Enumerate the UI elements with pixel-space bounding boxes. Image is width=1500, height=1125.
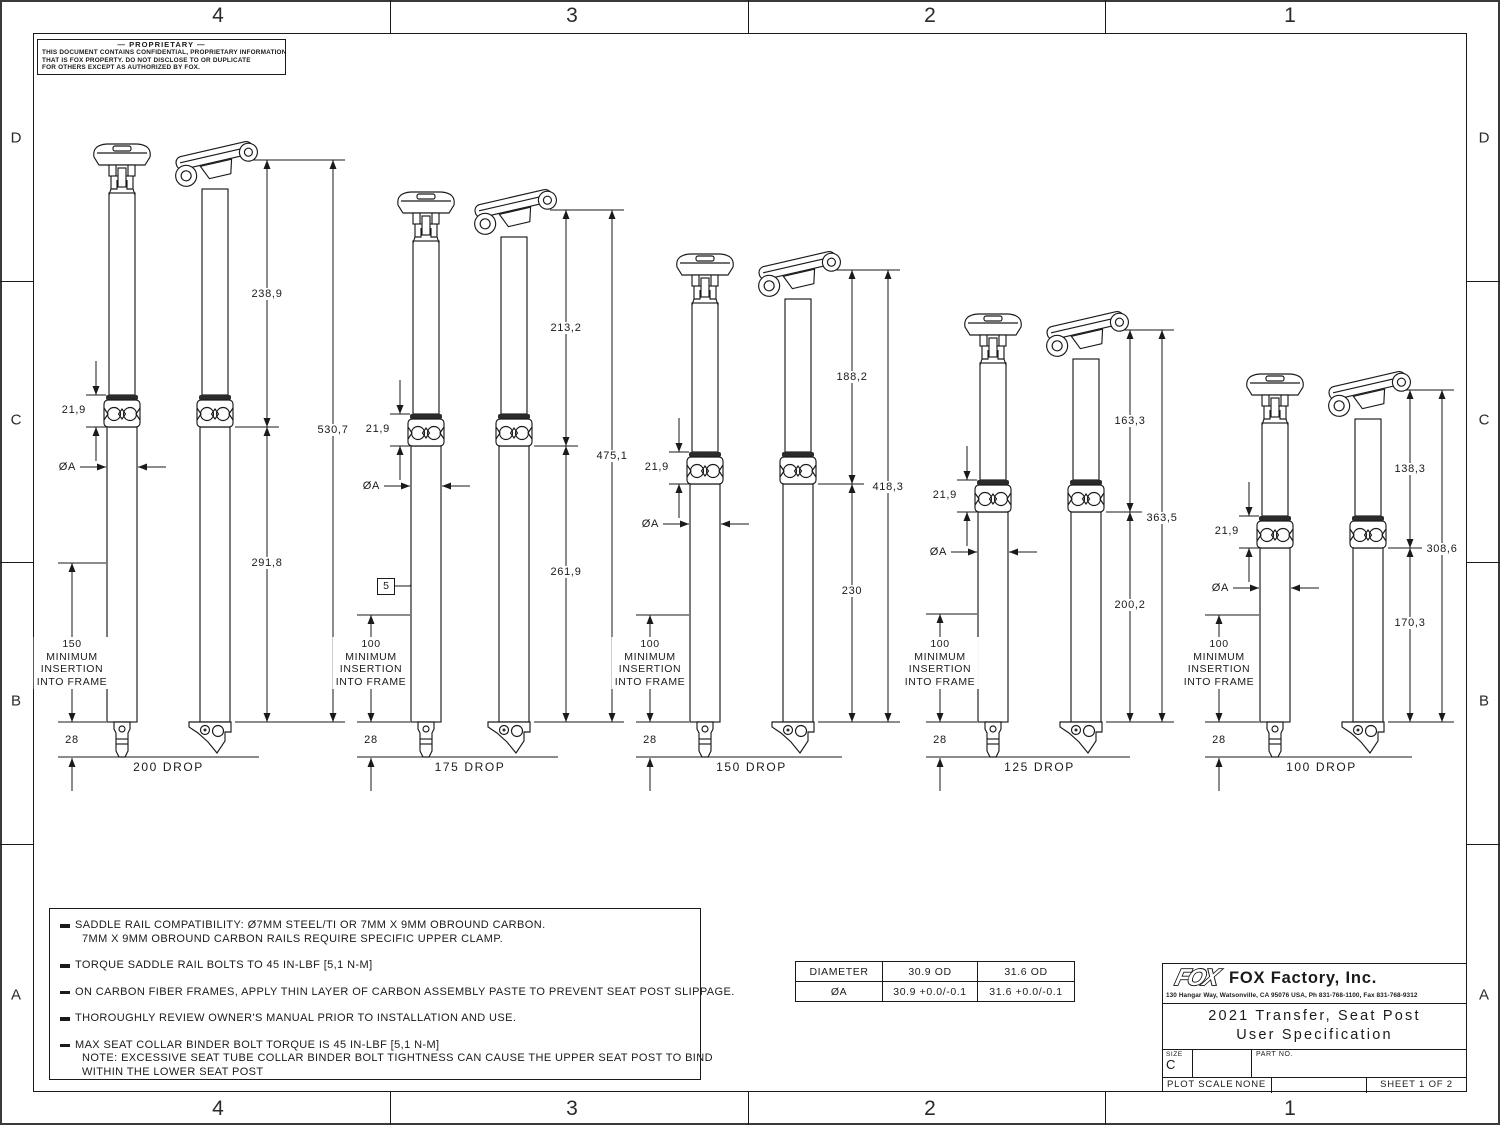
plot-scale-cell: PLOT SCALE NONE [1163,1078,1272,1093]
drawing-title-line1: 2021 Transfer, Seat Post [1163,1007,1466,1026]
note-line: MAX SEAT COLLAR BINDER BOLT TORQUE IS 45… [75,1039,713,1053]
fox-logo: FOX [1169,965,1227,991]
sheet-number: SHEET 1 OF 2 [1367,1078,1466,1093]
drawing-title: 2021 Transfer, Seat Post User Specificat… [1163,1007,1466,1050]
dim-lower-label: 230 [840,585,864,597]
insertion-note: 150MINIMUMINSERTIONINTO FRAME [34,637,111,689]
insertion-note-line: 100 [336,638,407,651]
dim-lower-label: 200,2 [1112,599,1147,611]
note-item: SADDLE RAIL COMPATIBILITY: Ø7MM STEEL/TI… [60,919,700,946]
insertion-note-line: INTO FRAME [1184,676,1255,689]
insertion-note-line: INSERTION [615,663,686,676]
title-block-company-row: FOX FOX Factory, Inc. 130 Hangar Way, Wa… [1163,964,1466,1004]
title-block-size-row: SIZE C PART NO. [1163,1050,1466,1078]
bottom-offset-label: 28 [362,734,380,746]
diameter-label: ØA [57,461,78,473]
dash-bullet-icon [60,964,70,968]
collar-height-label: 21,9 [643,461,671,473]
title-block-scale-row: PLOT SCALE NONE SHEET 1 OF 2 [1163,1078,1466,1093]
note-line: THOROUGHLY REVIEW OWNER'S MANUAL PRIOR T… [75,1012,516,1026]
collar-height-label: 21,9 [60,404,88,416]
dim-lower-label: 261,9 [548,566,583,578]
diameter-label: ØA [1210,582,1231,594]
company-address: 130 Hangar Way, Watsonville, CA 95076 US… [1166,992,1464,999]
fox-logo-text: FOX [1173,965,1224,990]
table-cell: 31.6 +0.0/-0.1 [978,982,1075,1002]
part-no-label: PART NO. [1256,1051,1466,1058]
plot-scale-value: NONE [1235,1079,1266,1093]
seatpost-2-art [636,249,900,791]
insertion-note-line: INSERTION [37,663,108,676]
seatpost-4-art [1205,369,1454,791]
note-item: ON CARBON FIBER FRAMES, APPLY THIN LAYER… [60,986,700,1000]
insertion-note-line: INSERTION [1184,663,1255,676]
insertion-note-line: 100 [615,638,686,651]
note-line: WITHIN THE LOWER SEAT POST [75,1066,713,1080]
seatpost-0-art [58,139,345,791]
note-line: 7MM X 9MM OBROUND CARBON RAILS REQUIRE S… [75,933,546,947]
size-cell: SIZE C [1163,1050,1193,1077]
table-cell: 30.9 +0.0/-0.1 [883,982,978,1002]
size-value: C [1166,1058,1192,1072]
dim-lower-label: 291,8 [249,557,284,569]
title-block: FOX FOX Factory, Inc. 130 Hangar Way, Wa… [1162,963,1467,1092]
dim-total-label: 530,7 [315,424,350,436]
note-line: TORQUE SADDLE RAIL BOLTS TO 45 IN-LBF [5… [75,959,373,973]
dash-bullet-icon [60,991,70,995]
drop-label: 200 DROP [133,760,204,774]
drop-label: 150 DROP [716,760,787,774]
plot-scale-label: PLOT SCALE [1167,1079,1233,1093]
insertion-note: 100MINIMUMINSERTIONINTO FRAME [902,637,979,689]
dim-upper-label: 138,3 [1392,463,1427,475]
drawing-sheet: 4 3 2 1 4 3 2 1 D C B A D C B A — PROPRI… [0,0,1500,1125]
empty-cell [1193,1050,1252,1077]
drop-label: 175 DROP [435,760,506,774]
diameter-label: ØA [928,546,949,558]
dim-lower-label: 170,3 [1392,617,1427,629]
table-header-cell: DIAMETER [796,962,883,982]
insertion-note-line: MINIMUM [336,651,407,664]
dim-upper-label: 213,2 [548,322,583,334]
dash-bullet-icon [60,1017,70,1021]
table-header-cell: 31.6 OD [978,962,1075,982]
diameter-table: DIAMETER 30.9 OD 31.6 OD ØA 30.9 +0.0/-0… [795,961,1075,1002]
insertion-note-line: MINIMUM [615,651,686,664]
table-row: ØA 30.9 +0.0/-0.1 31.6 +0.0/-0.1 [796,982,1075,1002]
dash-bullet-icon [60,924,70,928]
dim-total-label: 418,3 [870,481,905,493]
seatpost-1-art [357,187,624,791]
drawing-title-line2: User Specification [1163,1026,1466,1045]
dim-upper-label: 238,9 [249,288,284,300]
insertion-note-line: INTO FRAME [336,676,407,689]
bottom-offset-label: 28 [63,734,81,746]
insertion-note-line: MINIMUM [37,651,108,664]
note-item: TORQUE SADDLE RAIL BOLTS TO 45 IN-LBF [5… [60,959,700,973]
seatpost-3-art [926,309,1174,791]
bottom-offset-label: 28 [1210,734,1228,746]
insertion-note-line: INTO FRAME [37,676,108,689]
flag-note-5: 5 [377,578,395,595]
note-line: SADDLE RAIL COMPATIBILITY: Ø7MM STEEL/TI… [75,919,546,933]
dash-bullet-icon [60,1044,70,1048]
insertion-note-line: MINIMUM [905,651,976,664]
insertion-note: 100MINIMUMINSERTIONINTO FRAME [612,637,689,689]
insertion-note-line: MINIMUM [1184,651,1255,664]
insertion-note: 100MINIMUMINSERTIONINTO FRAME [333,637,410,689]
empty-cell [1272,1078,1367,1093]
note-item: MAX SEAT COLLAR BINDER BOLT TORQUE IS 45… [60,1039,700,1080]
drop-label: 100 DROP [1286,760,1357,774]
note-line: NOTE: EXCESSIVE SEAT TUBE COLLAR BINDER … [75,1052,713,1066]
note-item: THOROUGHLY REVIEW OWNER'S MANUAL PRIOR T… [60,1012,700,1026]
note-line: ON CARBON FIBER FRAMES, APPLY THIN LAYER… [75,986,735,1000]
dim-total-label: 308,6 [1424,543,1459,555]
insertion-note-line: 100 [1184,638,1255,651]
notes-box: SADDLE RAIL COMPATIBILITY: Ø7MM STEEL/TI… [49,908,701,1080]
part-no-cell: PART NO. [1252,1050,1466,1077]
dim-total-label: 363,5 [1144,512,1179,524]
company-name: FOX Factory, Inc. [1229,969,1377,988]
diameter-label: ØA [361,480,382,492]
insertion-note-line: INTO FRAME [615,676,686,689]
bottom-offset-label: 28 [641,734,659,746]
insertion-note-line: 150 [37,638,108,651]
table-header-cell: 30.9 OD [883,962,978,982]
drop-label: 125 DROP [1004,760,1075,774]
insertion-note-line: 100 [905,638,976,651]
table-cell: ØA [796,982,883,1002]
insertion-note-line: INSERTION [905,663,976,676]
dim-total-label: 475,1 [594,450,629,462]
collar-height-label: 21,9 [1213,525,1241,537]
insertion-note-line: INSERTION [336,663,407,676]
dim-upper-label: 188,2 [834,371,869,383]
insertion-note: 100MINIMUMINSERTIONINTO FRAME [1181,637,1258,689]
collar-height-label: 21,9 [931,489,959,501]
collar-height-label: 21,9 [364,423,392,435]
dim-upper-label: 163,3 [1112,415,1147,427]
insertion-note-line: INTO FRAME [905,676,976,689]
bottom-offset-label: 28 [931,734,949,746]
diameter-label: ØA [640,518,661,530]
